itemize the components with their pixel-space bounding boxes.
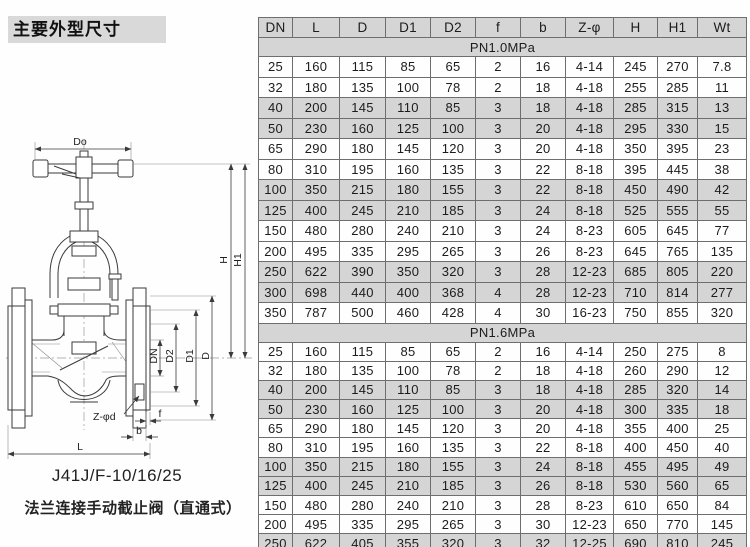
table-cell: 24 bbox=[521, 457, 566, 476]
table-cell: 135 bbox=[698, 241, 747, 262]
table-cell: 100 bbox=[431, 118, 476, 139]
table-cell: 295 bbox=[386, 241, 431, 262]
section-label: PN1.6MPa bbox=[259, 323, 747, 342]
table-header-row: DNLDD1D2fbZ-φHH1Wt bbox=[259, 18, 747, 38]
table-cell: 8-18 bbox=[566, 159, 614, 180]
valve-section-drawing: Do bbox=[0, 128, 258, 476]
table-row: 25062239035032032812-23685805220 bbox=[259, 262, 747, 283]
table-cell: 622 bbox=[293, 262, 340, 283]
column-header: D bbox=[340, 18, 386, 38]
table-cell: 215 bbox=[340, 180, 386, 201]
table-cell: 65 bbox=[431, 342, 476, 361]
table-cell: 320 bbox=[431, 262, 476, 283]
table-cell: 2 bbox=[476, 57, 521, 78]
table-cell: 85 bbox=[431, 380, 476, 399]
table-cell: 8-23 bbox=[566, 241, 614, 262]
table-cell: 18 bbox=[698, 400, 747, 419]
table-cell: 455 bbox=[614, 457, 658, 476]
table-cell: 4-18 bbox=[566, 400, 614, 419]
table-row: 35078750046042843016-23750855320 bbox=[259, 303, 747, 324]
table-cell: 335 bbox=[340, 241, 386, 262]
table-cell: 30 bbox=[521, 303, 566, 324]
table-cell: 3 bbox=[476, 496, 521, 515]
table-cell: 40 bbox=[259, 380, 293, 399]
table-cell: 180 bbox=[340, 139, 386, 160]
table-cell: 12-25 bbox=[566, 534, 614, 547]
table-cell: 155 bbox=[431, 457, 476, 476]
table-cell: 85 bbox=[431, 98, 476, 119]
table-cell: 100 bbox=[386, 361, 431, 380]
table-cell: 814 bbox=[658, 282, 698, 303]
table-cell: 400 bbox=[293, 476, 340, 495]
table-cell: 645 bbox=[614, 241, 658, 262]
table-cell: 770 bbox=[658, 515, 698, 534]
table-cell: 480 bbox=[293, 496, 340, 515]
table-cell: 787 bbox=[293, 303, 340, 324]
table-cell: 450 bbox=[658, 438, 698, 457]
dim-b: b bbox=[121, 425, 158, 441]
table-cell: 135 bbox=[340, 361, 386, 380]
table-cell: 120 bbox=[431, 139, 476, 160]
valve-model-code: J41J/F-10/16/25 bbox=[28, 466, 206, 486]
table-cell: 300 bbox=[259, 282, 293, 303]
dim-label-do: Do bbox=[73, 136, 87, 148]
dim-label-d2: D2 bbox=[164, 349, 176, 363]
table-cell: 400 bbox=[614, 438, 658, 457]
table-row: 1003502151801553248-1845549549 bbox=[259, 457, 747, 476]
table-cell: 250 bbox=[259, 262, 293, 283]
table-cell: 210 bbox=[431, 496, 476, 515]
table-cell: 160 bbox=[340, 400, 386, 419]
table-cell: 750 bbox=[614, 303, 658, 324]
table-cell: 4-18 bbox=[566, 118, 614, 139]
table-cell: 23 bbox=[698, 139, 747, 160]
table-cell: 4-14 bbox=[566, 342, 614, 361]
table-cell: 125 bbox=[386, 118, 431, 139]
section-header-row: PN1.6MPa bbox=[259, 323, 747, 342]
table-row: 32180135100782184-1826029012 bbox=[259, 361, 747, 380]
table-cell: 185 bbox=[431, 476, 476, 495]
table-cell: 195 bbox=[340, 159, 386, 180]
table-cell: 160 bbox=[340, 118, 386, 139]
dim-label-f: f bbox=[159, 408, 162, 420]
table-cell: 28 bbox=[521, 262, 566, 283]
table-cell: 22 bbox=[521, 438, 566, 457]
table-cell: 685 bbox=[614, 262, 658, 283]
table-cell: 145 bbox=[386, 139, 431, 160]
table-row: 40200145110853184-1828532014 bbox=[259, 380, 747, 399]
table-cell: 8-18 bbox=[566, 457, 614, 476]
table-cell: 400 bbox=[658, 419, 698, 438]
table-cell: 32 bbox=[259, 361, 293, 380]
table-cell: 28 bbox=[521, 282, 566, 303]
table-cell: 400 bbox=[293, 200, 340, 221]
table-cell: 350 bbox=[293, 457, 340, 476]
table-cell: 3 bbox=[476, 221, 521, 242]
column-header: H1 bbox=[658, 18, 698, 38]
table-cell: 18 bbox=[521, 361, 566, 380]
table-cell: 230 bbox=[293, 400, 340, 419]
table-cell: 180 bbox=[386, 457, 431, 476]
table-cell: 710 bbox=[614, 282, 658, 303]
table-cell: 3 bbox=[476, 241, 521, 262]
table-cell: 20 bbox=[521, 118, 566, 139]
table-cell: 12-23 bbox=[566, 515, 614, 534]
table-cell: 110 bbox=[386, 380, 431, 399]
table-cell: 115 bbox=[340, 342, 386, 361]
table-cell: 22 bbox=[521, 180, 566, 201]
table-cell: 145 bbox=[698, 515, 747, 534]
table-row: 1254002452101853248-1852555555 bbox=[259, 200, 747, 221]
table-cell: 100 bbox=[259, 457, 293, 476]
dim-label-dn: DN bbox=[148, 348, 160, 363]
table-cell: 3 bbox=[476, 380, 521, 399]
table-row: 30069844040036842812-23710814277 bbox=[259, 282, 747, 303]
table-cell: 200 bbox=[293, 380, 340, 399]
table-cell: 440 bbox=[340, 282, 386, 303]
table-cell: 3 bbox=[476, 98, 521, 119]
table-cell: 400 bbox=[386, 282, 431, 303]
table-cell: 395 bbox=[658, 139, 698, 160]
column-header: Z-φ bbox=[566, 18, 614, 38]
table-cell: 25 bbox=[259, 342, 293, 361]
dim-label-h: H bbox=[218, 256, 230, 264]
table-cell: 555 bbox=[658, 200, 698, 221]
table-row: 2516011585652164-142502758 bbox=[259, 342, 747, 361]
table-cell: 125 bbox=[386, 400, 431, 419]
table-cell: 3 bbox=[476, 180, 521, 201]
table-cell: 295 bbox=[614, 118, 658, 139]
table-cell: 335 bbox=[658, 400, 698, 419]
table-cell: 18 bbox=[521, 77, 566, 98]
table-cell: 295 bbox=[386, 515, 431, 534]
table-cell: 480 bbox=[293, 221, 340, 242]
table-cell: 200 bbox=[259, 241, 293, 262]
table-cell: 290 bbox=[658, 361, 698, 380]
table-cell: 3 bbox=[476, 262, 521, 283]
table-cell: 525 bbox=[614, 200, 658, 221]
table-cell: 65 bbox=[259, 139, 293, 160]
dimensions-table-wrap: DNLDD1D2fbZ-φHH1Wt PN1.0MPa2516011585652… bbox=[258, 17, 750, 547]
table-cell: 4-18 bbox=[566, 380, 614, 399]
table-row: 652901801451203204-1835540025 bbox=[259, 419, 747, 438]
dim-label-z-phi-d: Z-φd bbox=[93, 411, 116, 423]
table-cell: 110 bbox=[386, 98, 431, 119]
table-cell: 4-18 bbox=[566, 419, 614, 438]
table-cell: 100 bbox=[386, 77, 431, 98]
table-row: 1254002452101853268-1853056065 bbox=[259, 476, 747, 495]
table-cell: 160 bbox=[293, 342, 340, 361]
dim-label-l: L bbox=[77, 441, 83, 453]
table-cell: 12 bbox=[698, 361, 747, 380]
table-cell: 25 bbox=[259, 57, 293, 78]
dim-label-b: b bbox=[136, 425, 142, 437]
table-cell: 4-18 bbox=[566, 361, 614, 380]
table-cell: 42 bbox=[698, 180, 747, 201]
table-cell: 320 bbox=[431, 534, 476, 547]
table-cell: 7.8 bbox=[698, 57, 747, 78]
table-cell: 245 bbox=[340, 476, 386, 495]
table-cell: 245 bbox=[698, 534, 747, 547]
table-cell: 395 bbox=[614, 159, 658, 180]
table-cell: 250 bbox=[614, 342, 658, 361]
table-cell: 490 bbox=[658, 180, 698, 201]
table-cell: 3 bbox=[476, 419, 521, 438]
table-cell: 3 bbox=[476, 476, 521, 495]
dim-l: L bbox=[8, 425, 150, 459]
table-cell: 3 bbox=[476, 515, 521, 534]
table-cell: 8-18 bbox=[566, 438, 614, 457]
table-cell: 185 bbox=[431, 200, 476, 221]
table-cell: 125 bbox=[259, 200, 293, 221]
table-cell: 14 bbox=[698, 380, 747, 399]
table-cell: 500 bbox=[340, 303, 386, 324]
table-cell: 180 bbox=[293, 361, 340, 380]
table-cell: 200 bbox=[259, 515, 293, 534]
table-cell: 215 bbox=[340, 457, 386, 476]
table-row: 803101951601353228-1839544538 bbox=[259, 159, 747, 180]
table-cell: 210 bbox=[386, 476, 431, 495]
stem-yoke-bonnet bbox=[50, 178, 121, 336]
table-cell: 622 bbox=[293, 534, 340, 547]
table-cell: 24 bbox=[521, 200, 566, 221]
table-cell: 255 bbox=[614, 77, 658, 98]
table-cell: 300 bbox=[614, 400, 658, 419]
table-cell: 16-23 bbox=[566, 303, 614, 324]
table-cell: 250 bbox=[259, 534, 293, 547]
catalog-page: 主要外型尺寸 Do bbox=[0, 0, 750, 547]
table-cell: 3 bbox=[476, 457, 521, 476]
table-cell: 20 bbox=[521, 139, 566, 160]
table-cell: 135 bbox=[431, 438, 476, 457]
table-cell: 25 bbox=[698, 419, 747, 438]
table-cell: 16 bbox=[521, 57, 566, 78]
table-cell: 280 bbox=[340, 496, 386, 515]
table-cell: 220 bbox=[698, 262, 747, 283]
table-cell: 230 bbox=[293, 118, 340, 139]
table-cell: 265 bbox=[431, 241, 476, 262]
column-header: H bbox=[614, 18, 658, 38]
table-cell: 16 bbox=[521, 342, 566, 361]
table-cell: 240 bbox=[386, 496, 431, 515]
table-cell: 495 bbox=[658, 457, 698, 476]
table-cell: 280 bbox=[340, 221, 386, 242]
table-cell: 368 bbox=[431, 282, 476, 303]
table-cell: 8-23 bbox=[566, 496, 614, 515]
section-header-row: PN1.0MPa bbox=[259, 38, 747, 57]
table-cell: 65 bbox=[698, 476, 747, 495]
table-row: 502301601251003204-1829533015 bbox=[259, 118, 747, 139]
table-cell: 155 bbox=[431, 180, 476, 201]
table-cell: 38 bbox=[698, 159, 747, 180]
table-cell: 405 bbox=[340, 534, 386, 547]
table-cell: 4 bbox=[476, 282, 521, 303]
valve-type-caption: 法兰连接手动截止阀（直通式） bbox=[14, 497, 252, 518]
table-row: 803101951601353228-1840045040 bbox=[259, 438, 747, 457]
table-cell: 240 bbox=[386, 221, 431, 242]
table-cell: 100 bbox=[259, 180, 293, 201]
table-cell: 645 bbox=[658, 221, 698, 242]
table-cell: 120 bbox=[431, 419, 476, 438]
table-row: 25062240535532033212-25690810245 bbox=[259, 534, 747, 547]
dim-label-d1: D1 bbox=[184, 349, 196, 363]
table-cell: 26 bbox=[521, 241, 566, 262]
column-header: L bbox=[293, 18, 340, 38]
table-cell: 245 bbox=[340, 200, 386, 221]
table-cell: 245 bbox=[614, 57, 658, 78]
table-cell: 135 bbox=[340, 77, 386, 98]
table-cell: 200 bbox=[293, 98, 340, 119]
table-cell: 335 bbox=[340, 515, 386, 534]
table-row: 1504802802402103248-2360564577 bbox=[259, 221, 747, 242]
table-cell: 8-18 bbox=[566, 476, 614, 495]
table-cell: 320 bbox=[698, 303, 747, 324]
table-cell: 100 bbox=[431, 400, 476, 419]
table-cell: 8 bbox=[698, 342, 747, 361]
table-cell: 4 bbox=[476, 303, 521, 324]
table-cell: 20 bbox=[521, 419, 566, 438]
table-cell: 805 bbox=[658, 262, 698, 283]
table-cell: 125 bbox=[259, 476, 293, 495]
table-cell: 4-18 bbox=[566, 77, 614, 98]
table-cell: 3 bbox=[476, 400, 521, 419]
table-cell: 150 bbox=[259, 221, 293, 242]
table-cell: 30 bbox=[521, 515, 566, 534]
table-row: 40200145110853184-1828531513 bbox=[259, 98, 747, 119]
table-cell: 350 bbox=[614, 139, 658, 160]
table-cell: 690 bbox=[614, 534, 658, 547]
table-cell: 28 bbox=[521, 496, 566, 515]
table-cell: 210 bbox=[431, 221, 476, 242]
table-cell: 560 bbox=[658, 476, 698, 495]
table-cell: 650 bbox=[614, 515, 658, 534]
table-cell: 40 bbox=[259, 98, 293, 119]
table-cell: 78 bbox=[431, 361, 476, 380]
table-row: 32180135100782184-1825528511 bbox=[259, 77, 747, 98]
table-cell: 330 bbox=[658, 118, 698, 139]
table-cell: 277 bbox=[698, 282, 747, 303]
table-cell: 3 bbox=[476, 438, 521, 457]
table-cell: 450 bbox=[614, 180, 658, 201]
table-cell: 460 bbox=[386, 303, 431, 324]
table-cell: 260 bbox=[614, 361, 658, 380]
table-cell: 50 bbox=[259, 400, 293, 419]
column-header: b bbox=[521, 18, 566, 38]
table-cell: 270 bbox=[658, 57, 698, 78]
table-row: 652901801451203204-1835039523 bbox=[259, 139, 747, 160]
table-cell: 49 bbox=[698, 457, 747, 476]
table-cell: 290 bbox=[293, 139, 340, 160]
table-cell: 2 bbox=[476, 77, 521, 98]
table-cell: 18 bbox=[521, 98, 566, 119]
table-cell: 145 bbox=[386, 419, 431, 438]
dimensions-table: DNLDD1D2fbZ-φHH1Wt PN1.0MPa2516011585652… bbox=[258, 17, 747, 547]
table-cell: 350 bbox=[386, 262, 431, 283]
table-cell: 285 bbox=[658, 77, 698, 98]
table-cell: 8-18 bbox=[566, 180, 614, 201]
table-row: 502301601251003204-1830033518 bbox=[259, 400, 747, 419]
table-cell: 350 bbox=[293, 180, 340, 201]
table-cell: 2 bbox=[476, 361, 521, 380]
table-cell: 11 bbox=[698, 77, 747, 98]
table-cell: 15 bbox=[698, 118, 747, 139]
table-cell: 350 bbox=[259, 303, 293, 324]
table-cell: 285 bbox=[614, 98, 658, 119]
table-cell: 855 bbox=[658, 303, 698, 324]
table-cell: 3 bbox=[476, 159, 521, 180]
table-cell: 4-18 bbox=[566, 98, 614, 119]
column-header: f bbox=[476, 18, 521, 38]
table-cell: 355 bbox=[386, 534, 431, 547]
table-cell: 195 bbox=[340, 438, 386, 457]
column-header: Wt bbox=[698, 18, 747, 38]
table-cell: 145 bbox=[340, 380, 386, 399]
table-cell: 55 bbox=[698, 200, 747, 221]
table-cell: 4-14 bbox=[566, 57, 614, 78]
table-cell: 160 bbox=[293, 57, 340, 78]
table-row: 20049533529526533012-23650770145 bbox=[259, 515, 747, 534]
table-row: 1003502151801553228-1845049042 bbox=[259, 180, 747, 201]
table-cell: 12-23 bbox=[566, 262, 614, 283]
table-row: 2516011585652164-142452707.8 bbox=[259, 57, 747, 78]
table-cell: 3 bbox=[476, 200, 521, 221]
table-cell: 115 bbox=[340, 57, 386, 78]
table-cell: 530 bbox=[614, 476, 658, 495]
table-cell: 13 bbox=[698, 98, 747, 119]
table-cell: 77 bbox=[698, 221, 747, 242]
table-cell: 50 bbox=[259, 118, 293, 139]
column-header: D1 bbox=[386, 18, 431, 38]
flange-left bbox=[8, 288, 32, 428]
table-cell: 2 bbox=[476, 342, 521, 361]
dim-label-h1: H1 bbox=[232, 253, 244, 267]
table-cell: 315 bbox=[658, 98, 698, 119]
handwheel bbox=[33, 151, 133, 178]
table-cell: 24 bbox=[521, 221, 566, 242]
table-cell: 32 bbox=[259, 77, 293, 98]
table-cell: 3 bbox=[476, 118, 521, 139]
section-label: PN1.0MPa bbox=[259, 38, 747, 57]
table-cell: 65 bbox=[259, 419, 293, 438]
table-row: 1504802802402103288-2361065084 bbox=[259, 496, 747, 515]
table-row: 2004953352952653268-23645765135 bbox=[259, 241, 747, 262]
valve-body bbox=[32, 330, 132, 402]
table-cell: 355 bbox=[614, 419, 658, 438]
table-cell: 310 bbox=[293, 159, 340, 180]
table-cell: 285 bbox=[614, 380, 658, 399]
table-cell: 310 bbox=[293, 438, 340, 457]
table-cell: 210 bbox=[386, 200, 431, 221]
column-header: DN bbox=[259, 18, 293, 38]
table-cell: 650 bbox=[658, 496, 698, 515]
table-cell: 445 bbox=[658, 159, 698, 180]
table-cell: 698 bbox=[293, 282, 340, 303]
table-cell: 3 bbox=[476, 534, 521, 547]
table-cell: 320 bbox=[658, 380, 698, 399]
table-cell: 605 bbox=[614, 221, 658, 242]
table-body: PN1.0MPa2516011585652164-142452707.83218… bbox=[259, 38, 747, 547]
table-cell: 22 bbox=[521, 159, 566, 180]
column-header: D2 bbox=[431, 18, 476, 38]
table-cell: 390 bbox=[340, 262, 386, 283]
table-cell: 4-18 bbox=[566, 139, 614, 160]
table-cell: 160 bbox=[386, 438, 431, 457]
table-cell: 84 bbox=[698, 496, 747, 515]
table-cell: 495 bbox=[293, 241, 340, 262]
table-cell: 80 bbox=[259, 159, 293, 180]
table-cell: 180 bbox=[386, 180, 431, 201]
table-cell: 65 bbox=[431, 57, 476, 78]
